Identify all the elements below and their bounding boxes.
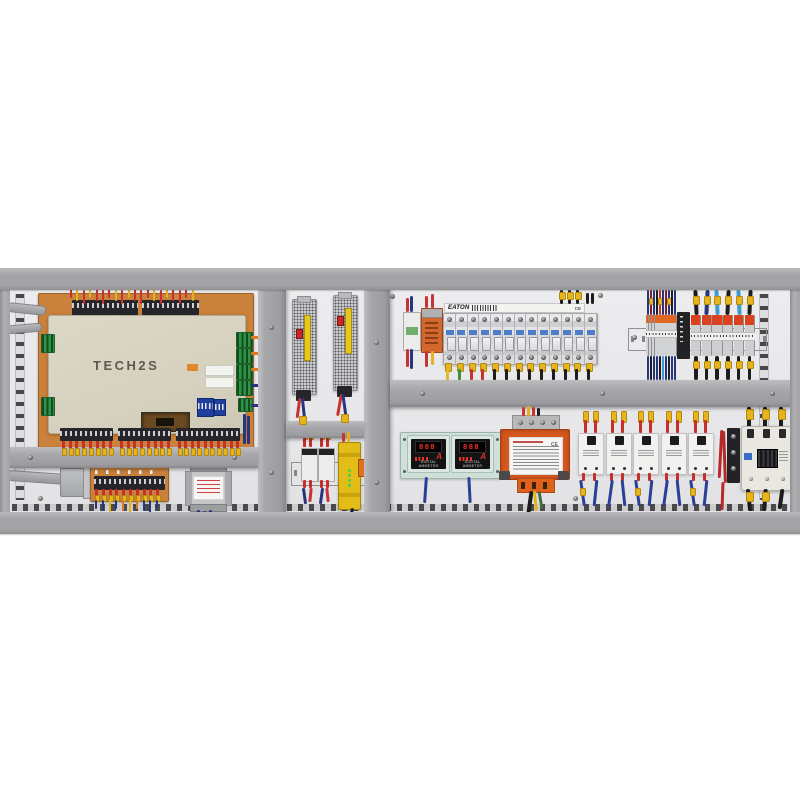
pole-toggle [505, 337, 514, 351]
contactor-top-marker-1 [746, 409, 754, 420]
pole-screw-top [529, 317, 534, 322]
ssr-unit [661, 433, 687, 475]
orange-relay-wire-down-1 [425, 351, 428, 367]
tb-wire-marker [736, 296, 743, 305]
mid-relay-lug [320, 438, 323, 447]
pole-toggle [541, 337, 550, 351]
ssr-bank [578, 411, 718, 513]
ctf-screw-4 [551, 420, 556, 425]
pole-toggle [447, 337, 456, 351]
pole-screw-top [541, 317, 546, 322]
ctf-foot-right [558, 471, 569, 480]
ctf-wire-3 [532, 407, 535, 416]
breaker-top-marker-2 [567, 292, 574, 300]
power-supply-2 [333, 295, 358, 391]
tb-wire-marker [704, 361, 711, 369]
ctf-foot-left [499, 471, 510, 480]
pole-screw-top [553, 317, 558, 322]
breakout-board-screws [95, 470, 161, 474]
pole-screw-top [482, 317, 487, 322]
plc-lug-sleeve [184, 448, 189, 456]
ssr-label-text [583, 450, 599, 457]
plc-top-wire [172, 289, 174, 301]
breaker-pole [562, 314, 574, 364]
relay-wire-down-2 [410, 349, 413, 369]
plc-lug-sleeve [102, 448, 107, 456]
plc-bottom-terminal-strip-1 [60, 428, 113, 441]
plc-top-wire [115, 289, 117, 301]
ssr-terminal-dot [584, 467, 587, 470]
divider-vertical-1 [258, 290, 286, 512]
pole-screw-top [576, 317, 581, 322]
pole-screw-bottom [553, 355, 558, 360]
plc-top-wire [192, 289, 194, 301]
contactor-rating-text [779, 451, 788, 463]
ssr-top-lug [621, 420, 624, 433]
frame-edge-left [0, 288, 10, 514]
tb-left-top-wire [674, 290, 676, 315]
meter-caption: DIGITAL AMMETER [455, 460, 490, 468]
meter-face: 888 A DIGITAL AMMETER [455, 439, 490, 469]
orange-relay-wire-down-2 [431, 351, 434, 365]
plc-top-wire [83, 290, 85, 304]
tb-left-top-wire [662, 290, 664, 315]
psu2-switch [337, 316, 344, 326]
plc-top-wire [76, 289, 78, 301]
breaker-top-marker-3 [575, 292, 582, 300]
pole-screw-top [471, 317, 476, 322]
pole-screw-top [565, 317, 570, 322]
tb-left-bottom-wire [674, 356, 676, 380]
plc-top-terminal-strip-2 [142, 300, 199, 315]
pole-screw-bottom [529, 355, 534, 360]
breaker-wire [470, 369, 473, 380]
ssr-label-text [638, 450, 654, 457]
plate-screw-1 [403, 438, 406, 441]
ssr-bottom-wire [675, 480, 680, 506]
ssr-terminal-dot [705, 467, 708, 470]
breakout-wire [136, 500, 138, 509]
pole-screw-top [459, 317, 464, 322]
pole-toggle [564, 337, 573, 351]
pole-screw-bottom [588, 355, 593, 360]
tb-left-top-wire [671, 290, 673, 315]
safety-led-3 [348, 479, 351, 482]
mid-relay [301, 448, 318, 482]
ctf-bottom-terminal [517, 478, 555, 493]
ssr-unit [688, 433, 714, 475]
contactor-top-marker-2 [762, 409, 770, 420]
relay-wire-down-1 [406, 349, 409, 367]
contactor-screw-b2 [765, 477, 769, 481]
monitor-relay [403, 312, 421, 351]
plc-lug-sleeve [89, 448, 94, 456]
plc-top-wire [160, 290, 162, 304]
frame-bar-bottom [0, 512, 800, 534]
plc-top-wire [102, 290, 104, 304]
breakout-wire [143, 500, 145, 511]
mid-relay-cap [319, 449, 334, 455]
divider-screw [269, 470, 274, 475]
breaker-top-wire-4 [586, 293, 589, 304]
breaker-row [443, 313, 598, 365]
plate-screw-3 [403, 470, 406, 473]
plc-lug-sleeve [69, 448, 74, 456]
pole-rating-label [540, 330, 548, 335]
divider-screw [770, 391, 775, 396]
tb-left-bottom-wire [671, 356, 673, 380]
ssr-terminal-dot [639, 467, 642, 470]
plc-right-wire-down [247, 416, 250, 444]
breaker-wire [552, 369, 555, 380]
plc-lug-sleeve [140, 448, 145, 456]
ctf-screw-2 [529, 420, 534, 425]
pole-rating-label [446, 330, 454, 335]
breaker-brand-label: EATON [448, 305, 469, 311]
digital-ammeter-2: 888 A DIGITAL AMMETER [451, 435, 494, 473]
breaker-pole [503, 314, 515, 364]
ctf-label-title [513, 441, 543, 443]
ssr-terminal-dot [678, 467, 681, 470]
contactor-terminal-t1 [747, 429, 754, 438]
safety-wire-yellow [347, 432, 350, 442]
plc-lug-sleeve [120, 448, 125, 456]
ssr-bottom-wire [593, 480, 598, 506]
ssr-top-lug [611, 420, 614, 433]
safety-wire-red [342, 433, 345, 442]
plc-right-connector-4 [236, 380, 253, 396]
divider-horizontal-right [390, 380, 790, 407]
contactor-screw-b3 [781, 477, 785, 481]
pole-screw-bottom [565, 355, 570, 360]
ssr-top-lug [649, 420, 652, 433]
pole-rating-label [575, 330, 583, 335]
ssr-bottom-lug [692, 473, 695, 481]
mid-relay-lug [309, 438, 312, 447]
pole-rating-label [587, 330, 595, 335]
divider-screw [374, 480, 379, 485]
breaker-pole [468, 314, 480, 364]
pole-rating-label [516, 330, 524, 335]
terminal-group-right-band [691, 332, 755, 341]
pole-toggle [482, 337, 491, 351]
breaker-pole [515, 314, 527, 364]
ssr-terminal-dot [612, 467, 615, 470]
tb-left-bottom-wire [659, 356, 661, 380]
ctf-screw-3 [540, 420, 545, 425]
plc-lug-sleeve [75, 448, 80, 456]
ctf-label: CE [509, 437, 563, 475]
contactor-core-window [757, 449, 778, 468]
ssr-unit [578, 433, 604, 475]
breaker-barcode [472, 305, 498, 311]
pole-screw-top [518, 317, 523, 322]
breakout-terminal-strip [94, 476, 165, 490]
panel-enclosure: TECH2S [0, 268, 800, 534]
contactor-terminal-t3 [779, 429, 786, 438]
pole-rating-label [493, 330, 501, 335]
ssr-top-lug [594, 420, 597, 433]
meter-face: 888 A DIGITAL AMMETER [411, 439, 446, 469]
plc-right-connector-1 [236, 332, 253, 348]
tb-wire-marker [714, 361, 721, 369]
panel-screw-4 [573, 496, 578, 501]
pole-screw-bottom [506, 355, 511, 360]
breaker-label-strip: EATON CE [444, 303, 585, 313]
plc-lug-sleeve [133, 448, 138, 456]
pole-toggle [494, 337, 503, 351]
relay-wire-up-1 [406, 298, 409, 312]
breaker-top-marker-1 [559, 292, 566, 300]
psu1-label-strip [304, 315, 311, 361]
ssr-bottom-wire [703, 480, 708, 506]
pole-screw-bottom [447, 355, 452, 360]
plc-lug-sleeve [236, 448, 241, 456]
pole-toggle [552, 337, 561, 351]
contactor-bottom-marker-2 [762, 492, 770, 502]
black-strip-screw-3 [731, 466, 736, 471]
pole-toggle [517, 337, 526, 351]
tb-wire-marker [704, 296, 711, 305]
safety-led-2 [348, 474, 351, 477]
contactor-bottom-marker-1 [746, 492, 754, 502]
ssr-terminal-dot [650, 467, 653, 470]
plc-bottom-terminal-strip-2 [118, 428, 171, 441]
plc-lug-sleeve [197, 448, 202, 456]
plc-lug-sleeve [167, 448, 172, 456]
plc-right-wire-down [243, 414, 246, 444]
digital-ammeter-1: 888 A DIGITAL AMMETER [407, 435, 450, 473]
pole-rating-label [504, 330, 512, 335]
plc-lug-sleeve [147, 448, 152, 456]
tb-wire-marker [736, 361, 743, 369]
safety-relay-band-1 [339, 453, 360, 457]
breakout-wire [156, 500, 158, 509]
plc-dip-switch-2 [214, 399, 226, 416]
psu1-tab [297, 296, 311, 303]
small-transformer-label-text [197, 480, 220, 496]
ssr-top-lug [704, 420, 707, 433]
plc-lug-sleeve [223, 448, 228, 456]
ssr-terminal-cover [642, 436, 651, 445]
pole-toggle [576, 337, 585, 351]
ssr-wire-marker [690, 488, 696, 496]
ctf-wire-4 [537, 408, 540, 416]
power-relay-orange [421, 308, 443, 353]
ssr-label-text [693, 450, 709, 457]
safety-led-1 [348, 469, 351, 472]
control-panel-photo: TECH2S [0, 0, 800, 800]
contactor-terminal-t2 [763, 429, 770, 438]
ssr-terminal-cover [697, 436, 706, 445]
plc-lug-sleeve [178, 448, 183, 456]
mid-relay-lug [326, 438, 329, 447]
breaker-wire [493, 369, 496, 380]
plc-lug-sleeve [204, 448, 209, 456]
relay-wire-up-2 [410, 296, 413, 312]
breaker-wire [540, 369, 543, 380]
ssr-terminal-dot [595, 467, 598, 470]
breakout-wire [122, 500, 124, 511]
tb-left-bottom-wire [656, 356, 658, 380]
tb-wire-marker [725, 296, 732, 305]
pole-rating-label [528, 330, 536, 335]
orange-relay-wire-up-1 [425, 296, 428, 308]
plc-lug-sleeve [127, 448, 132, 456]
plc-top-terminal-strip-1 [72, 300, 138, 315]
mid-relay-lug [309, 480, 312, 488]
breaker-wire [481, 369, 484, 380]
ssr-unit [633, 433, 659, 475]
psu1-switch [296, 329, 303, 339]
tb-wire-marker [693, 361, 700, 369]
pole-screw-bottom [471, 355, 476, 360]
ssr-top-lug [639, 420, 642, 433]
psu2-tab [338, 292, 352, 299]
contactor [741, 426, 792, 491]
safety-led-4 [348, 484, 351, 487]
plc-top-wire [153, 289, 155, 301]
pole-rating-label [481, 330, 489, 335]
panel-screw-1 [390, 294, 395, 299]
panel-screw-3 [38, 496, 43, 501]
breakout-wire [102, 500, 104, 511]
power-supply-1 [292, 299, 317, 395]
divider-screw [374, 340, 379, 345]
plc-label-sticker-1 [205, 365, 234, 376]
tb-left-bottom-wire [647, 356, 649, 380]
plc-lug-sleeve [160, 448, 165, 456]
tb-wire-marker [747, 296, 754, 305]
ssr-wire-marker [635, 488, 641, 496]
breaker-wire [446, 369, 449, 380]
plc-lug-sleeve [154, 448, 159, 456]
divider-screw [420, 391, 425, 396]
pole-screw-top [447, 317, 452, 322]
plc-lug-sleeve [109, 448, 114, 456]
ssr-bottom-wire [662, 480, 668, 506]
breaker-pole [538, 314, 550, 364]
plc-dip-switch-1 [197, 398, 214, 417]
plc-lug-sleeve [210, 448, 215, 456]
ssr-terminal-dot [623, 467, 626, 470]
plc-left-connector-1 [41, 334, 55, 353]
plc-bottom-terminal-strip-3 [176, 428, 240, 441]
ssr-top-lug [584, 420, 587, 433]
divider-screw [269, 325, 274, 330]
mid-relay [318, 448, 335, 482]
psu2-wire-marker [341, 414, 349, 423]
breaker-pole [526, 314, 538, 364]
safety-relay-band-2 [339, 493, 360, 497]
frame-bar-top [0, 268, 800, 290]
psu1-wire-marker [299, 416, 307, 425]
pole-toggle [458, 337, 467, 351]
breaker-top-wire-5 [591, 293, 594, 304]
plc-lug-sleeve [62, 448, 67, 456]
breaker-pole [444, 314, 456, 364]
tb-left-bottom-wire [665, 356, 667, 380]
divider-screw [600, 391, 605, 396]
meter-digits: 888 [463, 443, 480, 451]
ssr-bottom-wire [620, 480, 625, 506]
ssr-bottom-lug [637, 473, 640, 481]
plc-top-wire [134, 289, 136, 301]
mid-relay-lug [320, 480, 323, 488]
ssr-terminal-dot [667, 467, 670, 470]
ctf-screw-1 [518, 420, 523, 425]
breaker-pole [479, 314, 491, 364]
contactor-screw-b1 [749, 477, 753, 481]
tb-left-bottom-wire [662, 356, 664, 380]
breaker-pole [550, 314, 562, 364]
breaker-wire [528, 369, 531, 380]
black-strip-screw-2 [731, 450, 736, 455]
tb-left-bottom-wire [653, 356, 655, 380]
ssr-terminal-cover [587, 436, 596, 445]
tb-left-bottom-wire [650, 356, 652, 380]
pole-screw-top [494, 317, 499, 322]
ssr-bottom-lug [582, 473, 585, 481]
mid-relay-lug [303, 438, 306, 447]
breakout-wire [95, 500, 97, 509]
ssr-top-lug [676, 420, 679, 433]
contactor-brand-label [744, 453, 752, 460]
plc-right-connector-2 [236, 348, 253, 364]
pole-rating-label [469, 330, 477, 335]
plc-lug-sleeve [217, 448, 222, 456]
breaker-pole [573, 314, 585, 364]
plc-lug-sleeve [82, 448, 87, 456]
ctf-wire-2 [527, 406, 530, 416]
ssr-unit [606, 433, 632, 475]
monitor-relay-label [406, 327, 418, 335]
breaker-wire [587, 369, 590, 380]
pole-screw-bottom [541, 355, 546, 360]
breaker-pole [456, 314, 468, 364]
plc-lug-sleeve [230, 448, 235, 456]
mid-relay-lug [303, 480, 306, 488]
plc-lug-sleeve [191, 448, 196, 456]
pole-rating-label [457, 330, 465, 335]
pole-screw-bottom [482, 355, 487, 360]
pole-screw-bottom [518, 355, 523, 360]
plc-top-wire [96, 289, 98, 301]
ssr-bottom-wire [607, 480, 613, 506]
plc-lug-sleeve [96, 448, 101, 456]
ssr-label-text [666, 450, 682, 457]
contactor-top-marker-3 [778, 409, 786, 420]
tb-wire-marker [693, 296, 700, 305]
tb-wire-marker [747, 361, 754, 369]
ssr-terminal-cover [615, 436, 624, 445]
ssr-top-lug [666, 420, 669, 433]
plc-top-wire [121, 290, 123, 304]
power-relay-slots [425, 322, 438, 344]
breaker-pole [585, 314, 597, 364]
ssr-wire-marker [580, 488, 586, 496]
breaker-wire [458, 369, 461, 380]
mid-relay-cap [302, 449, 317, 455]
tb-left-bottom-wire [668, 356, 670, 380]
plate-screw-2 [496, 438, 499, 441]
breaker-wire [564, 369, 567, 380]
divider-vertical-2 [364, 290, 390, 512]
meter-digits: 888 [419, 443, 436, 451]
safety-relay [338, 442, 361, 510]
black-strip-screw-1 [731, 434, 736, 439]
ssr-top-lug [694, 420, 697, 433]
